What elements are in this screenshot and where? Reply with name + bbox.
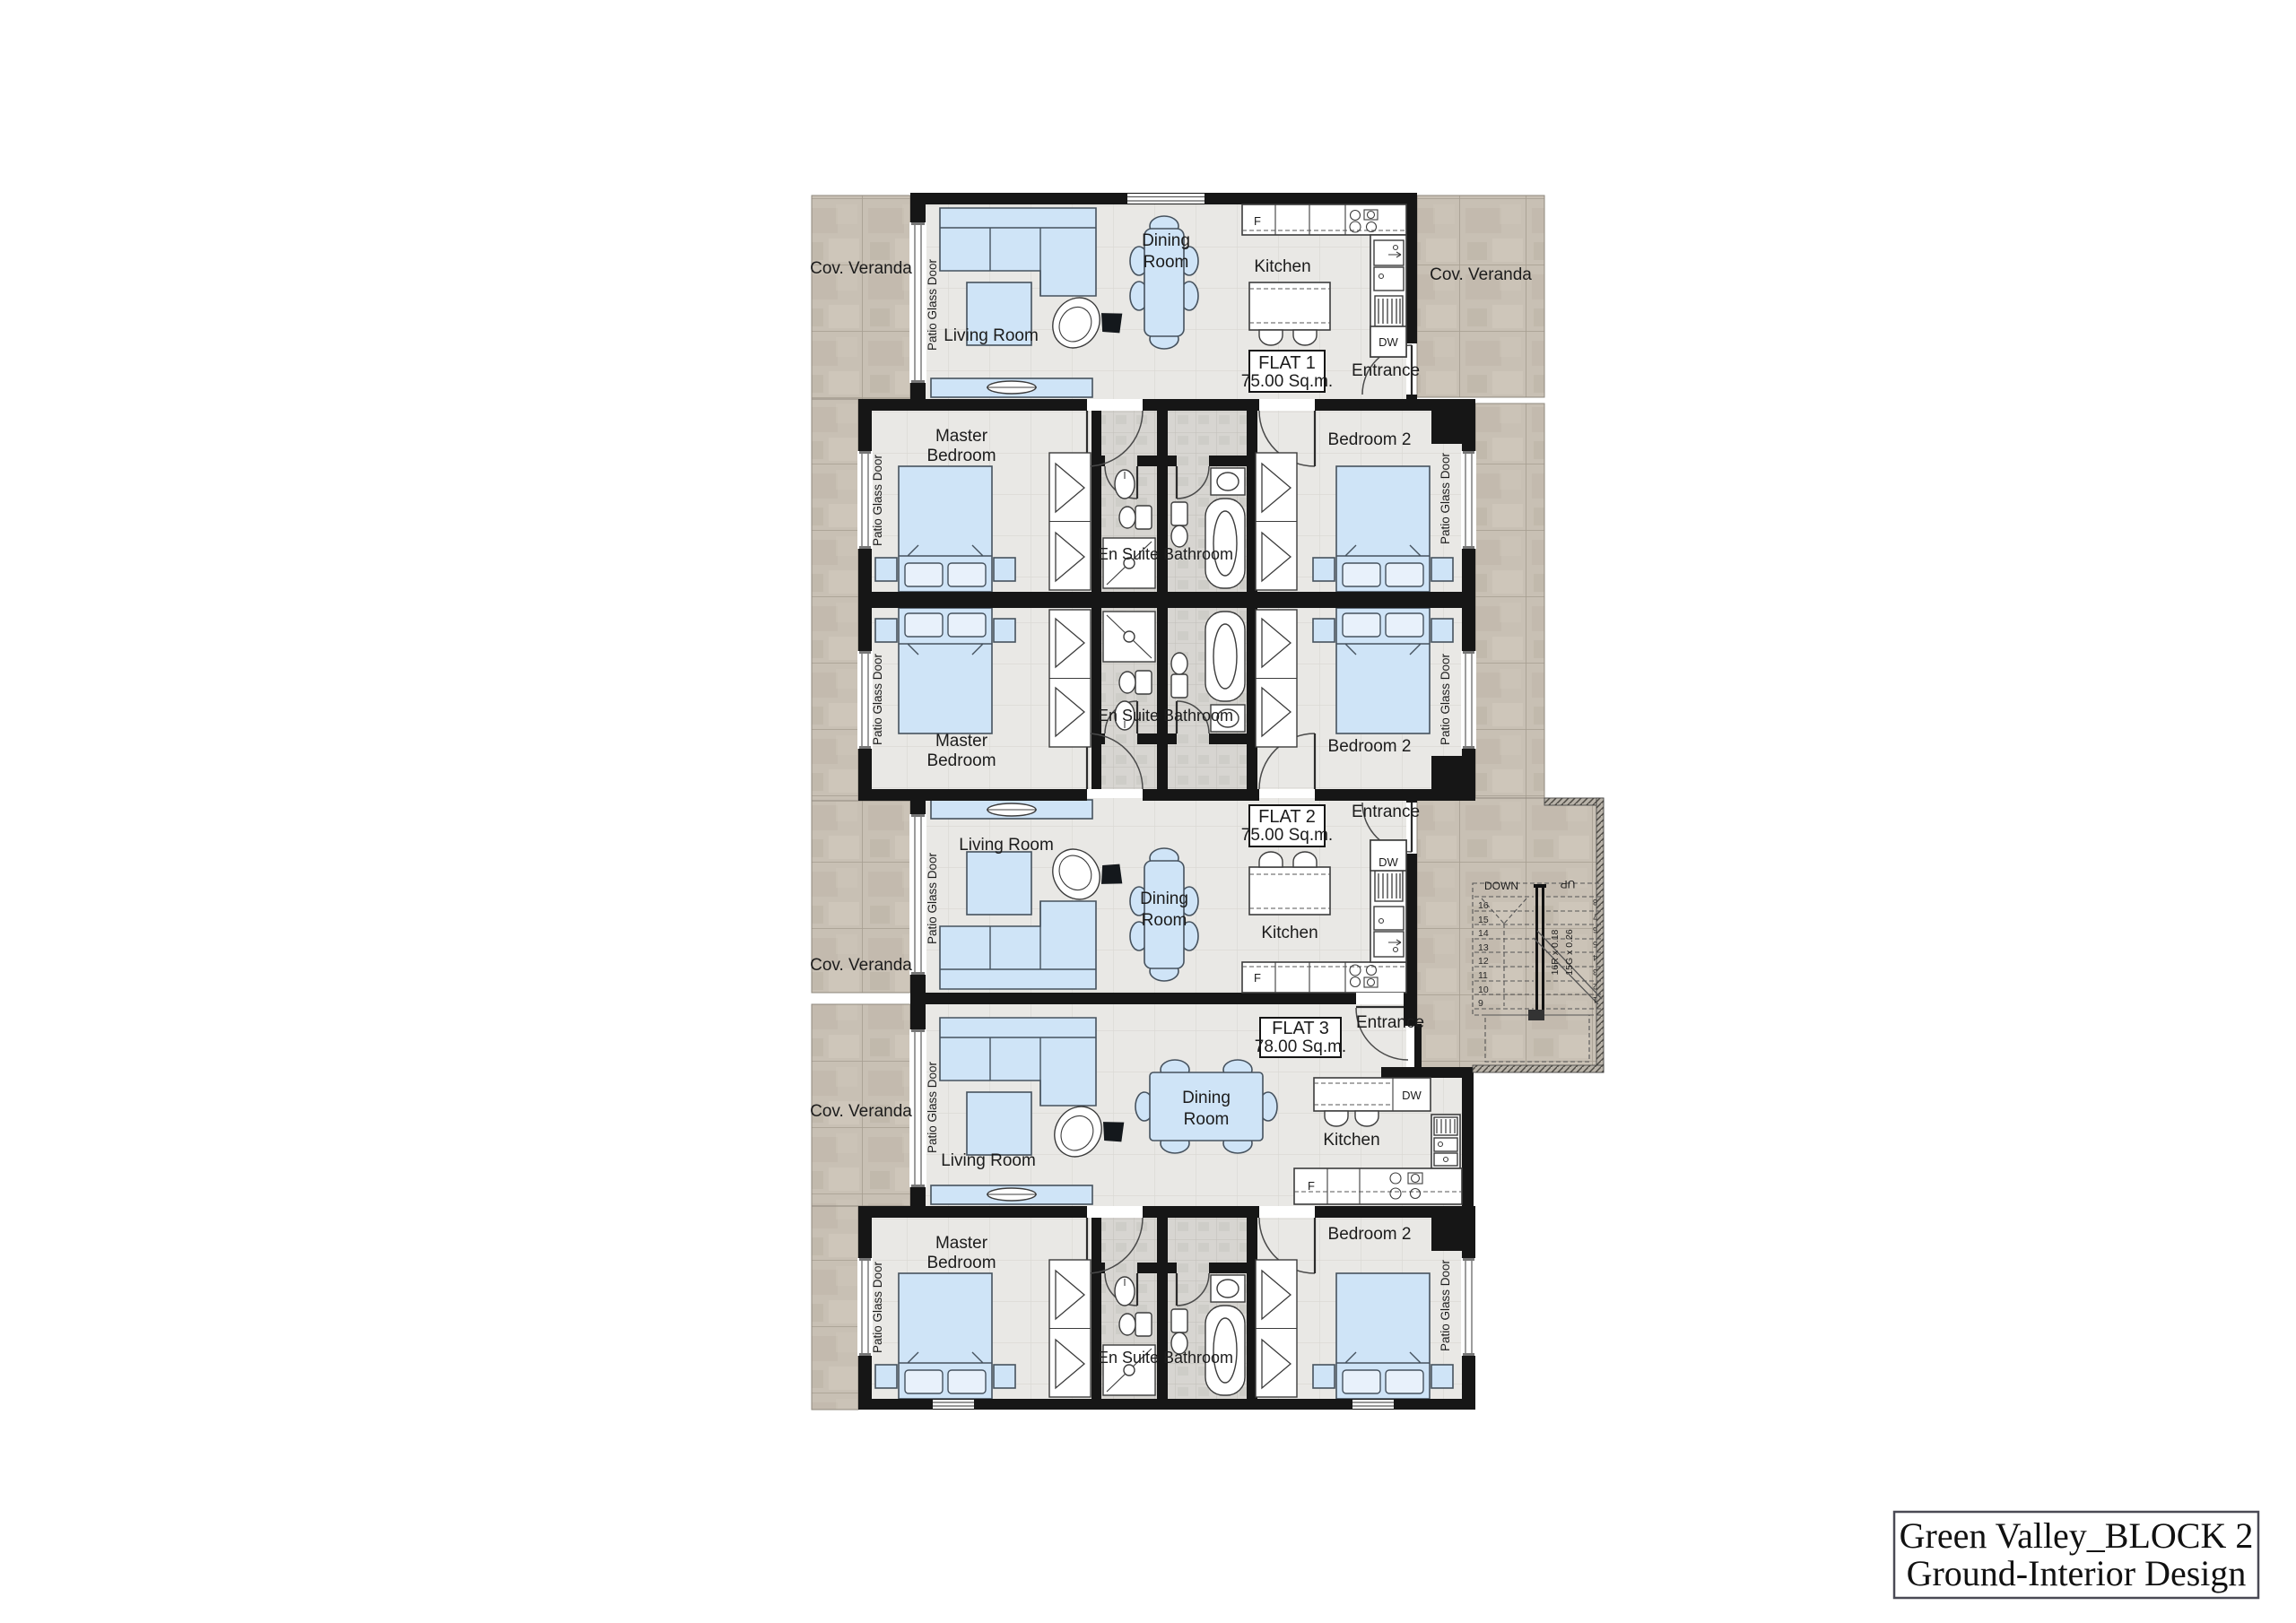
bathroom-label-row2: Bathroom <box>1163 707 1233 725</box>
stair-step-13: 13 <box>1478 942 1489 953</box>
stair-step-16: 16 <box>1478 900 1489 911</box>
stair-railing-end <box>1528 1010 1544 1020</box>
patio-door-label-flat2: Patio Glass Door <box>926 852 939 944</box>
stair-step-9: 9 <box>1478 998 1483 1009</box>
stair-step-r2: 2 <box>1593 982 1597 991</box>
dishwasher-label-flat3: DW <box>1402 1089 1422 1102</box>
master-label-row1-l1: Master <box>935 427 988 446</box>
room-label-living-flat3: Living Room <box>941 1151 1036 1170</box>
room-label-dining-flat3-l1: Dining <box>1182 1089 1231 1107</box>
room-label-dining-flat2-l1: Dining <box>1140 890 1188 908</box>
bedroom2-label-row3: Bedroom 2 <box>1328 1225 1412 1244</box>
title-block: Green Valley_BLOCK 2 Ground-Interior Des… <box>1894 1512 2258 1598</box>
stair-lobby <box>1417 798 1604 1072</box>
stair-going-note: 15G x 0.26 <box>1564 929 1575 976</box>
room-label-living-flat1: Living Room <box>944 326 1039 345</box>
veranda-label-top-right: Cov. Veranda <box>1430 265 1532 284</box>
floor-plan-page: Cov. Veranda Cov. Veranda Cov. Veranda C… <box>0 0 2296 1623</box>
patio-door-label-flat3: Patio Glass Door <box>926 1061 939 1153</box>
stair-step-11: 11 <box>1478 970 1488 981</box>
master-label-row2-l1: Master <box>935 732 988 751</box>
bedroom2-label-row2: Bedroom 2 <box>1328 737 1412 756</box>
stair-riser-note: 16R x 0.18 <box>1550 929 1561 975</box>
veranda-left-strip-lower <box>812 1206 858 1410</box>
ensuite-label-row3: En Suite <box>1098 1349 1159 1367</box>
floor-plan-drawing: Cov. Veranda Cov. Veranda Cov. Veranda C… <box>0 0 2296 1623</box>
veranda-left-strip-upper <box>812 399 858 801</box>
stair-step-14: 14 <box>1478 928 1489 939</box>
stair-step-r6: 6 <box>1593 925 1597 934</box>
stair-step-r7: 7 <box>1593 912 1597 921</box>
flat1-unit <box>909 193 1417 399</box>
entrance-label-flat2: Entrance <box>1352 803 1420 821</box>
master-label-row3-l2: Bedroom <box>926 1254 996 1272</box>
fridge-label-flat3: F <box>1308 1179 1315 1193</box>
stair-step-10: 10 <box>1478 985 1489 995</box>
flat1-area: 75.00 Sq.m. <box>1241 372 1333 391</box>
room-label-dining-flat2-l2: Room <box>1142 911 1187 930</box>
master-label-row1-l2: Bedroom <box>926 447 996 465</box>
flat2-name: FLAT 2 <box>1258 807 1316 827</box>
stair-step-r5: 5 <box>1593 940 1597 949</box>
party-wall-flat1-flat2 <box>858 592 1475 608</box>
stair-step-12: 12 <box>1478 956 1489 967</box>
patio-door-label-row1-left: Patio Glass Door <box>871 454 884 546</box>
fridge-label-flat2: F <box>1254 971 1261 985</box>
bedroom2-label-row1: Bedroom 2 <box>1328 430 1412 449</box>
veranda-top-left <box>812 195 910 399</box>
flat3-area: 78.00 Sq.m. <box>1255 1037 1346 1056</box>
room-label-living-flat2: Living Room <box>959 836 1054 855</box>
stairs-up-label: UP <box>1561 878 1576 890</box>
bathroom-label-row3: Bathroom <box>1163 1349 1233 1367</box>
patio-door-label-flat1: Patio Glass Door <box>926 258 939 351</box>
patio-door-label-row2-right: Patio Glass Door <box>1439 653 1452 745</box>
entrance-label-flat1: Entrance <box>1352 361 1420 380</box>
stair-step-r1: 1 <box>1593 995 1597 1004</box>
patio-door-label-row3-right: Patio Glass Door <box>1439 1259 1452 1351</box>
patio-door-label-row3-left: Patio Glass Door <box>871 1261 884 1353</box>
flat2-area: 75.00 Sq.m. <box>1241 826 1333 845</box>
flat3-name: FLAT 3 <box>1272 1019 1329 1038</box>
bathroom-label-row1: Bathroom <box>1163 545 1233 563</box>
ensuite-label-row1: En Suite <box>1098 545 1159 563</box>
stair-step-15: 15 <box>1478 915 1489 925</box>
stair-step-r4: 4 <box>1593 953 1597 962</box>
room-label-dining-flat1-l2: Room <box>1144 253 1189 272</box>
patio-door-label-row2-left: Patio Glass Door <box>871 653 884 745</box>
master-label-row2-l2: Bedroom <box>926 751 996 770</box>
room-label-dining-flat3-l2: Room <box>1184 1110 1230 1129</box>
master-label-row3-l1: Master <box>935 1234 988 1253</box>
veranda-label-bottom-left: Cov. Veranda <box>810 1102 912 1121</box>
stair-step-r8: 8 <box>1593 898 1597 907</box>
title-line1: Green Valley_BLOCK 2 <box>1900 1515 2254 1556</box>
fridge-label-flat1: F <box>1254 214 1261 228</box>
stairs-down-label: DOWN <box>1484 880 1518 892</box>
veranda-top-right <box>1417 195 1544 397</box>
room-label-kitchen-flat1: Kitchen <box>1254 257 1310 276</box>
veranda-right-strip <box>1475 404 1544 798</box>
title-line2: Ground-Interior Design <box>1907 1553 2247 1593</box>
veranda-label-top-left: Cov. Veranda <box>810 259 912 278</box>
room-label-kitchen-flat3: Kitchen <box>1323 1131 1379 1150</box>
flat1-window <box>1127 194 1205 204</box>
stair-step-r3: 3 <box>1593 968 1597 976</box>
room-label-kitchen-flat2: Kitchen <box>1261 924 1318 942</box>
room-label-dining-flat1-l1: Dining <box>1142 231 1190 250</box>
dishwasher-label-flat2: DW <box>1378 855 1398 869</box>
dishwasher-label-flat1: DW <box>1378 335 1398 349</box>
patio-door-label-row1-right: Patio Glass Door <box>1439 452 1452 544</box>
flat1-name: FLAT 1 <box>1258 353 1316 373</box>
entrance-label-flat3: Entrance <box>1356 1013 1424 1032</box>
ensuite-label-row2: En Suite <box>1098 707 1159 725</box>
veranda-label-mid-left: Cov. Veranda <box>810 956 912 975</box>
bedroom-row-flat2 <box>857 608 1476 801</box>
